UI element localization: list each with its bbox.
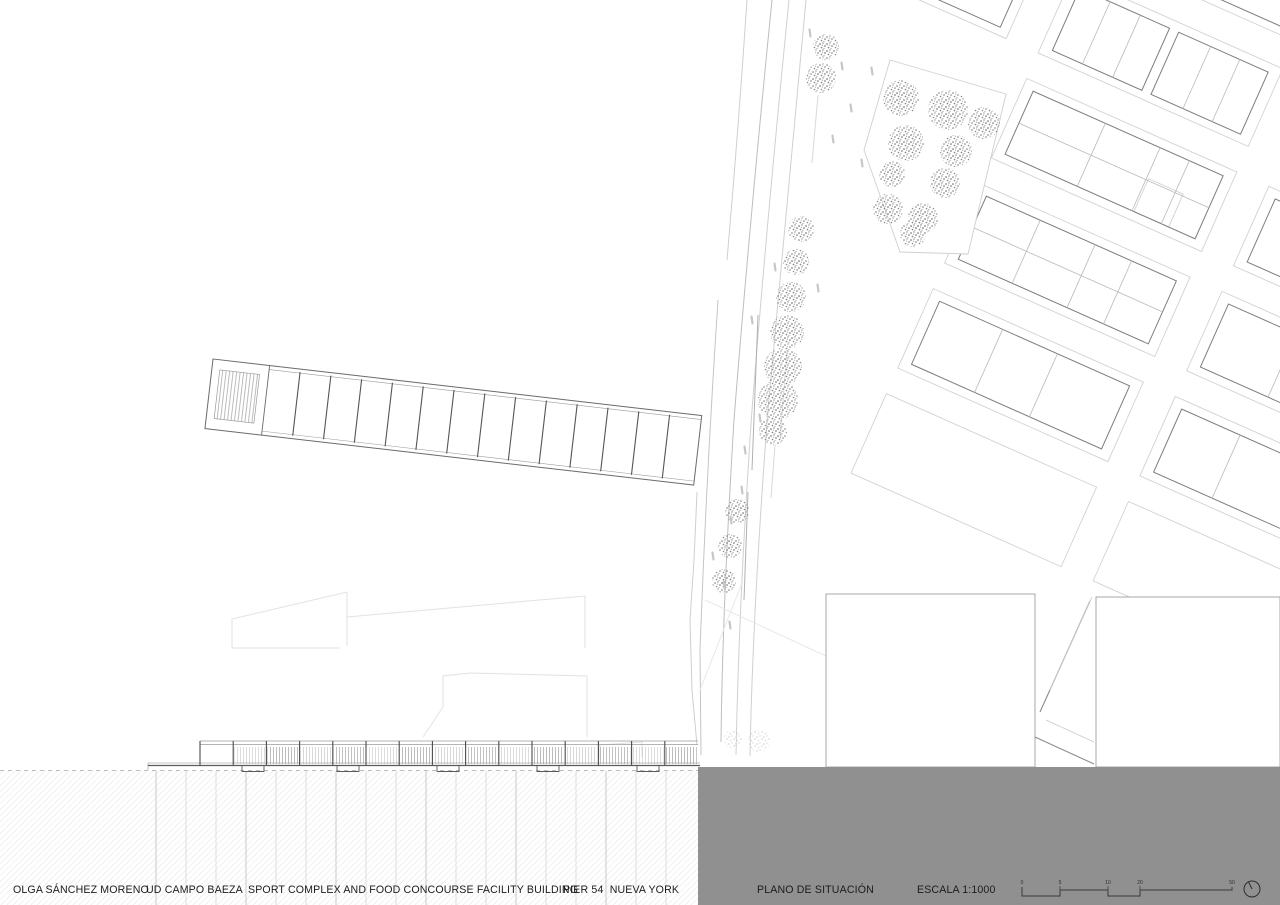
facade-panel <box>500 747 531 764</box>
title-author: OLGA SÁNCHEZ MORENO <box>13 884 149 896</box>
road-mark <box>808 28 811 37</box>
facade-panel <box>633 747 664 764</box>
tree <box>724 730 742 748</box>
tree-crown <box>936 174 955 193</box>
drawing-scale: ESCALA 1:1000 <box>917 884 996 896</box>
tree-crown <box>884 166 900 182</box>
svg-text:20: 20 <box>1137 880 1143 886</box>
pier-building-plan <box>205 359 702 485</box>
tree-crown <box>766 388 791 413</box>
facade-panel <box>433 747 464 764</box>
facade-panel <box>234 747 265 764</box>
tree-crown <box>771 355 795 379</box>
facade-panel <box>367 747 398 764</box>
tree-crown <box>905 226 921 242</box>
waterfront-building-b <box>1096 597 1280 767</box>
facade-panel <box>467 747 498 764</box>
facade-panel <box>666 747 697 764</box>
tree-crown <box>936 98 961 123</box>
svg-text:5: 5 <box>1059 880 1062 886</box>
tree-crown <box>723 539 738 554</box>
tree-crown <box>730 504 745 519</box>
tree-crown <box>974 113 994 133</box>
facade-panel <box>334 747 365 764</box>
road-mark <box>728 620 731 629</box>
title-project: SPORT COMPLEX AND FOOD CONCOURSE FACILIT… <box>248 884 578 896</box>
title-studio: UD CAMPO BAEZA <box>146 884 243 896</box>
road-mark <box>743 445 746 454</box>
waterfront-building-a <box>826 594 1035 767</box>
drawing-title: PLANO DE SITUACIÓN <box>757 884 874 896</box>
tree-crown <box>895 132 917 154</box>
tree-crown <box>818 39 834 55</box>
tree-crown <box>890 87 912 109</box>
road-mark <box>849 103 852 112</box>
title-location: PIER 54 NUEVA YORK <box>563 884 679 896</box>
road-mark <box>831 134 834 143</box>
elevation-strip <box>148 741 700 772</box>
facade-panel <box>599 747 630 764</box>
tree-crown <box>812 69 831 88</box>
road-mark <box>773 262 776 271</box>
street-gap-lines <box>1035 597 1094 764</box>
tree-crown <box>879 200 898 219</box>
road-mark <box>870 66 873 75</box>
facade-panel <box>301 747 332 764</box>
road-mark <box>750 315 753 324</box>
road-mark <box>740 485 743 494</box>
tree-crown <box>946 141 966 161</box>
svg-text:0: 0 <box>1021 880 1024 886</box>
road-mark <box>758 413 761 422</box>
svg-text:10: 10 <box>1105 880 1111 886</box>
tree-crown <box>782 288 801 307</box>
facade-panel <box>566 747 597 764</box>
facade-panel <box>533 747 564 764</box>
site-plan-drawing: 0 5 10 20 50 <box>0 0 1280 905</box>
main-street <box>690 0 818 756</box>
road-mark <box>711 551 714 560</box>
road-mark <box>816 283 819 292</box>
svg-text:50: 50 <box>1229 880 1235 886</box>
tree-crown <box>793 221 809 237</box>
tree-crown <box>764 422 781 439</box>
facade-panel <box>267 747 298 764</box>
road-mark <box>840 61 843 70</box>
road-mark <box>860 158 863 167</box>
tree <box>748 730 770 752</box>
tree-crown <box>788 254 804 270</box>
tree-crown <box>776 321 797 342</box>
pier-head-ramp <box>214 370 259 423</box>
facade-panel <box>400 747 431 764</box>
